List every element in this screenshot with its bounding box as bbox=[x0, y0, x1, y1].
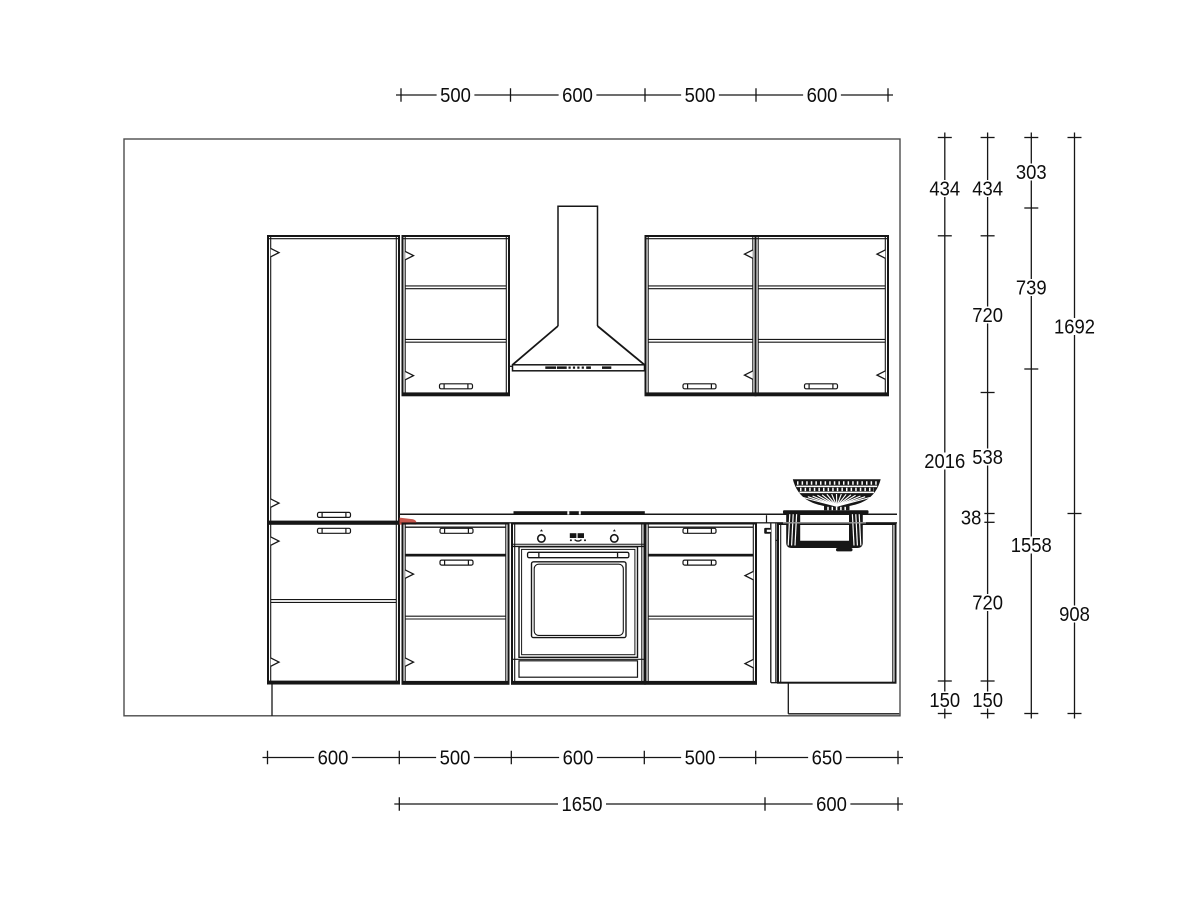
svg-text:739: 739 bbox=[1016, 276, 1047, 299]
svg-text:1692: 1692 bbox=[1054, 315, 1095, 338]
svg-text:150: 150 bbox=[929, 689, 960, 712]
svg-text:1650: 1650 bbox=[562, 793, 603, 816]
svg-text:150: 150 bbox=[972, 689, 1003, 712]
svg-text:500: 500 bbox=[440, 84, 471, 107]
svg-text:720: 720 bbox=[972, 591, 1003, 614]
svg-text:908: 908 bbox=[1059, 603, 1090, 626]
svg-text:600: 600 bbox=[563, 746, 594, 769]
svg-text:434: 434 bbox=[929, 177, 960, 200]
svg-text:600: 600 bbox=[562, 84, 593, 107]
svg-text:38: 38 bbox=[961, 506, 982, 529]
svg-text:500: 500 bbox=[440, 746, 471, 769]
svg-text:500: 500 bbox=[685, 746, 716, 769]
svg-text:434: 434 bbox=[972, 177, 1003, 200]
svg-text:720: 720 bbox=[972, 304, 1003, 327]
svg-text:303: 303 bbox=[1016, 161, 1047, 184]
svg-text:2016: 2016 bbox=[924, 450, 965, 473]
svg-text:600: 600 bbox=[318, 746, 349, 769]
svg-text:600: 600 bbox=[807, 84, 838, 107]
svg-text:538: 538 bbox=[972, 446, 1003, 469]
svg-text:500: 500 bbox=[685, 84, 716, 107]
svg-text:1558: 1558 bbox=[1011, 534, 1052, 557]
svg-text:600: 600 bbox=[816, 793, 847, 816]
svg-text:650: 650 bbox=[812, 746, 843, 769]
